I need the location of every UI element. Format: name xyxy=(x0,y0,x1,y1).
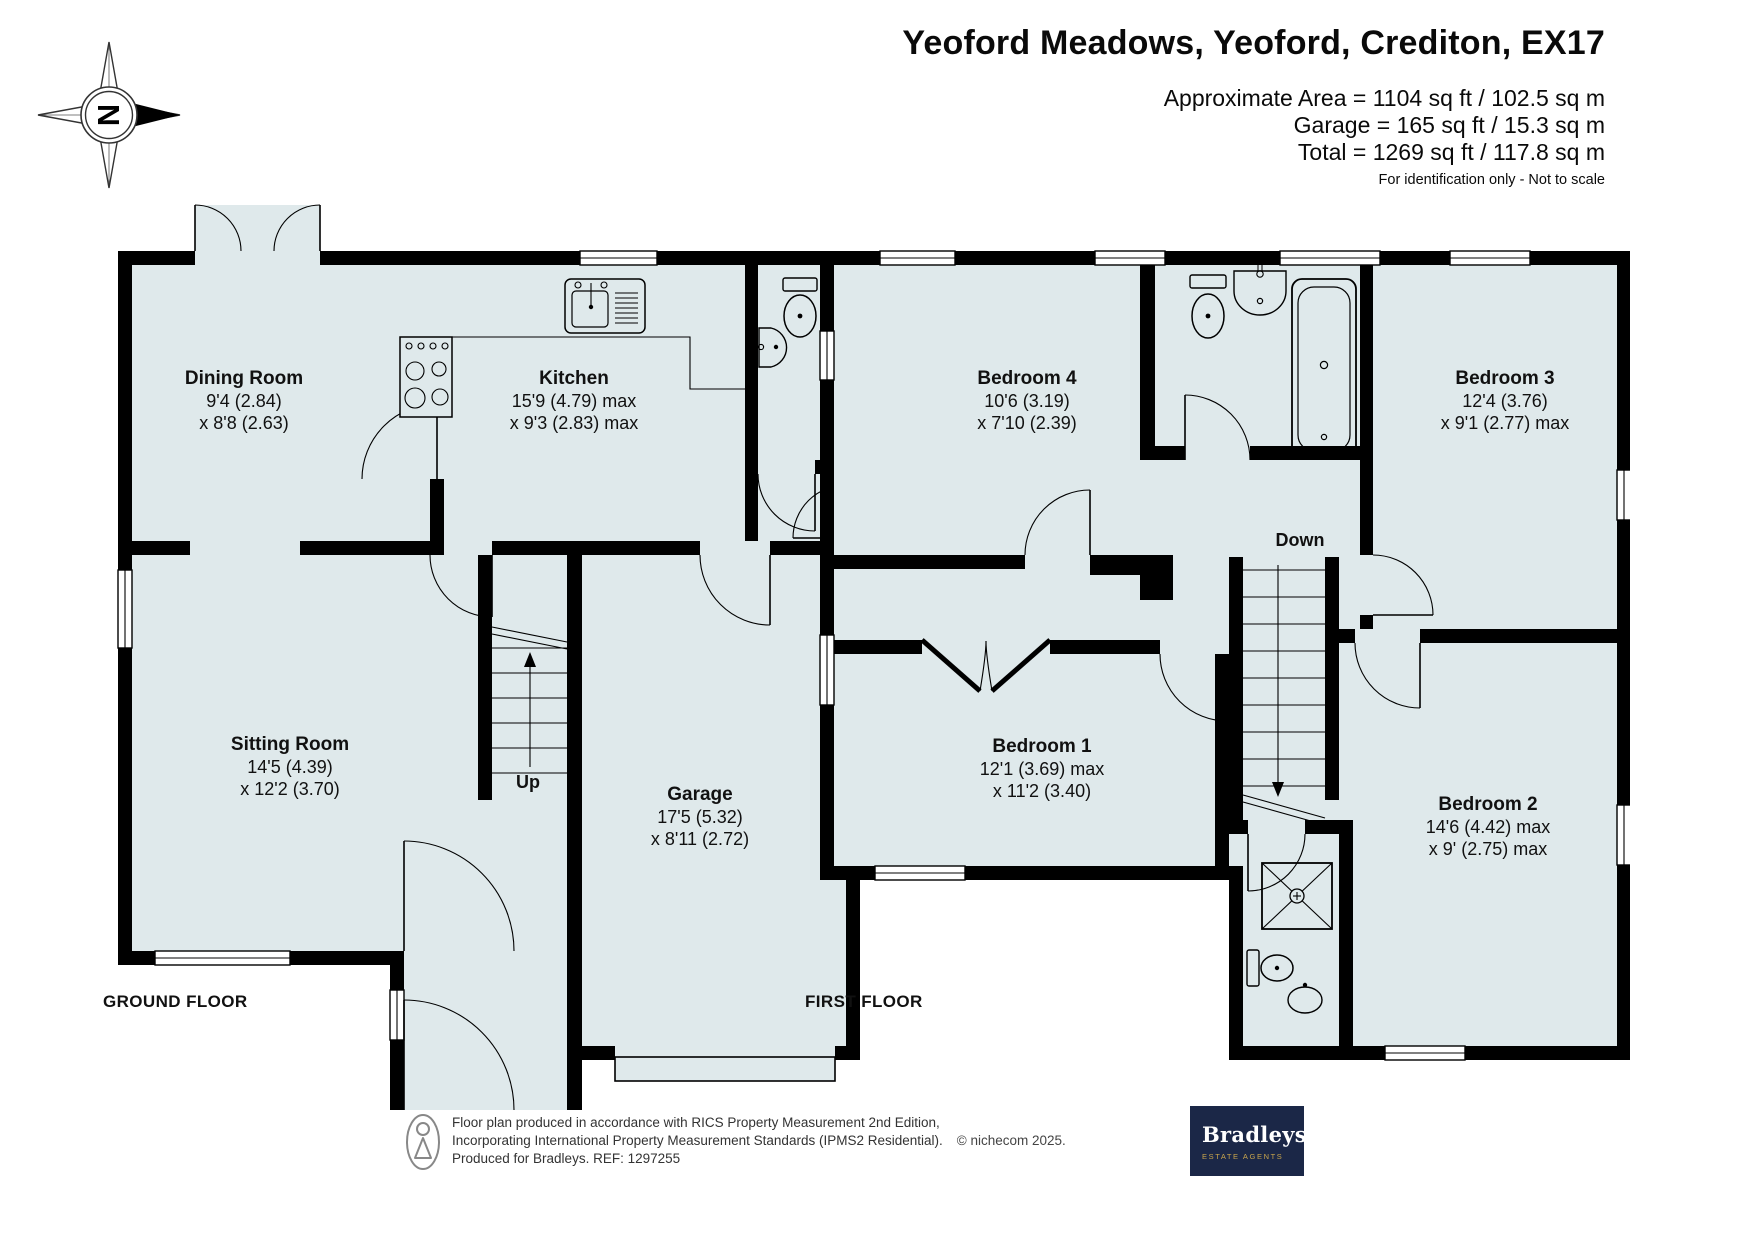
room-label-kitchen: Kitchen 15'9 (4.79) max x 9'3 (2.83) max xyxy=(510,368,639,434)
area-line-approximate: Approximate Area = 1104 sq ft / 102.5 sq… xyxy=(902,85,1605,112)
ipms-person-icon xyxy=(400,1106,446,1181)
hob-icon xyxy=(400,337,452,417)
room-label-bedroom-1: Bedroom 1 12'1 (3.69) max x 11'2 (3.40) xyxy=(980,736,1105,802)
bradleys-logo-name: Bradleys xyxy=(1202,1122,1304,1147)
sink-icon xyxy=(565,279,645,333)
area-summary: Approximate Area = 1104 sq ft / 102.5 sq… xyxy=(902,85,1605,166)
ground-floor-label: GROUND FLOOR xyxy=(103,992,248,1012)
stairs-up-label: Up xyxy=(516,772,540,793)
nichecom-copyright: © nichecom 2025. xyxy=(957,1133,1066,1148)
room-label-bedroom-3: Bedroom 3 12'4 (3.76) x 9'1 (2.77) max xyxy=(1441,368,1570,434)
bradleys-logo: Bradleys ESTATE AGENTS xyxy=(1190,1106,1304,1176)
room-label-bedroom-2: Bedroom 2 14'6 (4.42) max x 9' (2.75) ma… xyxy=(1426,794,1551,860)
bradleys-logo-tagline: ESTATE AGENTS xyxy=(1202,1152,1304,1161)
first-floor-plan xyxy=(800,175,1630,1095)
room-label-garage: Garage 17'5 (5.32) x 8'11 (2.72) xyxy=(651,784,749,850)
room-label-bedroom-4: Bedroom 4 10'6 (3.19) x 7'10 (2.39) xyxy=(977,368,1077,434)
footer-line-1: Floor plan produced in accordance with R… xyxy=(452,1114,1066,1132)
footer-line-3: Produced for Bradleys. REF: 1297255 xyxy=(452,1150,1066,1168)
stairs-down-label: Down xyxy=(1276,530,1325,551)
compass-north-letter: N xyxy=(91,104,126,126)
area-line-total: Total = 1269 sq ft / 117.8 sq m xyxy=(902,139,1605,166)
room-label-sitting-room: Sitting Room 14'5 (4.39) x 12'2 (3.70) xyxy=(231,734,349,800)
page-title: Yeoford Meadows, Yeoford, Crediton, EX17 xyxy=(902,24,1605,63)
area-line-garage: Garage = 165 sq ft / 15.3 sq m xyxy=(902,112,1605,139)
floorplan-page: { "header": { "title": "Yeoford Meadows,… xyxy=(0,0,1755,1241)
first-floor-label: FIRST FLOOR xyxy=(805,992,923,1012)
room-label-dining-room: Dining Room 9'4 (2.84) x 8'8 (2.63) xyxy=(185,368,303,434)
footer-line-2: Incorporating International Property Mea… xyxy=(452,1132,1066,1150)
header: Yeoford Meadows, Yeoford, Crediton, EX17… xyxy=(902,24,1605,188)
footer-disclaimer: Floor plan produced in accordance with R… xyxy=(452,1114,1066,1168)
